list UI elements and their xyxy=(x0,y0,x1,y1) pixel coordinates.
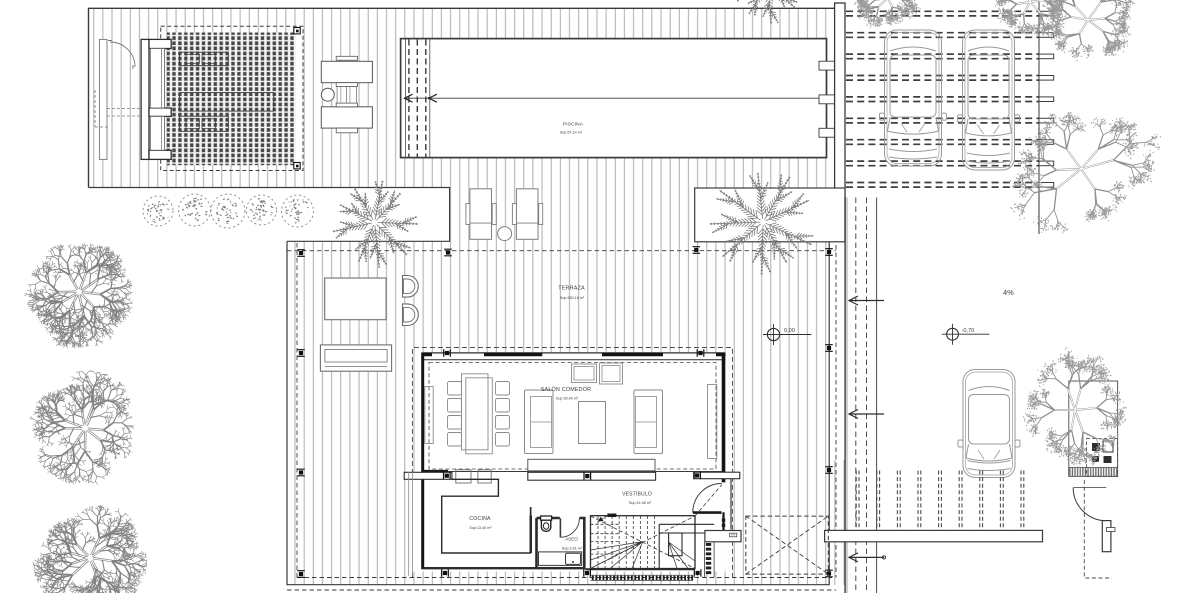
svg-text:VESTÍBULO: VESTÍBULO xyxy=(622,491,652,498)
svg-text:PISCINA: PISCINA xyxy=(563,122,584,128)
svg-text:Sup:57,14 m²: Sup:57,14 m² xyxy=(560,131,583,135)
svg-text:-0,70: -0,70 xyxy=(962,328,975,334)
svg-text:4%: 4% xyxy=(1003,288,1014,297)
svg-text:Sup:280,16 m²: Sup:280,16 m² xyxy=(560,296,585,300)
svg-text:Sup:14,46 m²: Sup:14,46 m² xyxy=(629,501,652,505)
svg-text:SALÓN COMEDOR: SALÓN COMEDOR xyxy=(541,386,592,393)
svg-text:0,00: 0,00 xyxy=(784,328,795,334)
svg-text:Sup:2,91 m²: Sup:2,91 m² xyxy=(562,547,583,551)
svg-text:Sup:39,49 m²: Sup:39,49 m² xyxy=(556,397,579,401)
svg-text:Sup:13,40 m²: Sup:13,40 m² xyxy=(469,526,492,530)
svg-text:COCINA: COCINA xyxy=(469,516,491,522)
svg-text:TERRAZA: TERRAZA xyxy=(558,286,585,292)
svg-text:ASEO: ASEO xyxy=(565,537,578,542)
